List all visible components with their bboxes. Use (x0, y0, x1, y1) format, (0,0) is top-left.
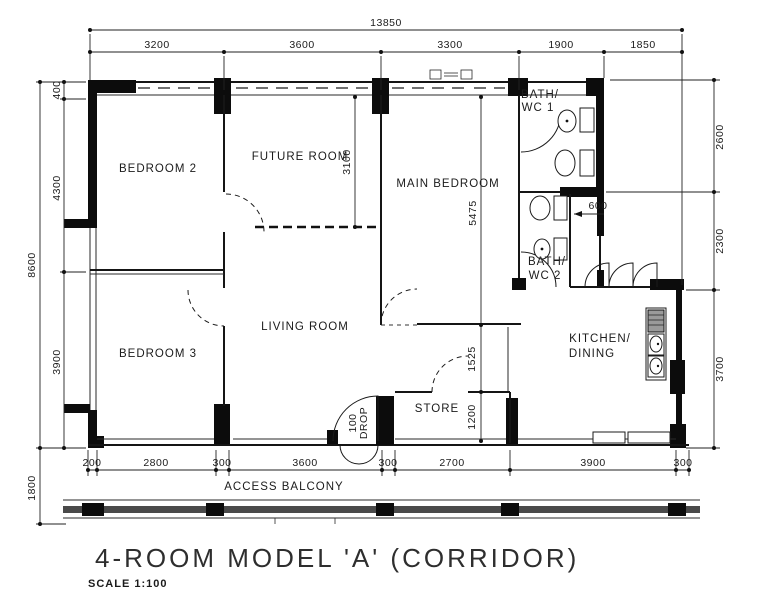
label-living-room: LIVING ROOM (261, 321, 349, 333)
dim-right-3: 3700 (714, 356, 726, 381)
dim-bottom-7: 3900 (580, 457, 605, 469)
store-door-swing (432, 356, 468, 392)
dim-top-1: 3200 (144, 39, 169, 51)
dim-bottom-8: 300 (673, 457, 692, 469)
room-labels: BEDROOM 2 FUTURE ROOM MAIN BEDROOM BEDRO… (119, 89, 631, 493)
dim-bottom-3: 300 (212, 457, 231, 469)
kitchen-sink-unit (646, 308, 666, 380)
entrance-gate-swing (340, 445, 359, 464)
dim-right-2: 2300 (714, 228, 726, 253)
label-bedroom3: BEDROOM 3 (119, 348, 197, 360)
dim-top-2: 3600 (289, 39, 314, 51)
dim-bottom-2: 2800 (143, 457, 168, 469)
label-bath2-1: BATH/ (528, 256, 566, 268)
wall-fin-upper (64, 219, 90, 228)
bath1-vanity (580, 108, 594, 132)
dim-bottom-4: 3600 (292, 457, 317, 469)
vent-symbol (430, 70, 472, 79)
label-store: STORE (415, 403, 459, 415)
dim-bottom-5: 300 (378, 457, 397, 469)
label-kitchen-2: DINING (569, 348, 615, 360)
exterior-walls (64, 78, 689, 448)
dim-hall-width: 1525 (466, 346, 478, 371)
dim-left-overall: 8600 (26, 252, 38, 277)
dim-store-depth: 1200 (466, 404, 478, 429)
label-kitchen-1: KITCHEN/ (569, 333, 631, 345)
entrance-gate-swing (359, 445, 378, 464)
bath2-wc-tank (554, 196, 567, 220)
kitchen-folding-door (609, 263, 633, 287)
label-bath1-1: BATH/ (521, 89, 559, 101)
dim-left-1: 400 (51, 80, 63, 99)
corridor-strip (63, 500, 700, 524)
title-block: 4-ROOM MODEL 'A' (CORRIDOR) SCALE 1:100 (88, 543, 579, 590)
kitchen-window (593, 432, 625, 443)
dim-bottom-6: 2700 (439, 457, 464, 469)
dim-duct: 600 (588, 200, 607, 212)
drawing-title: 4-ROOM MODEL 'A' (CORRIDOR) (95, 543, 579, 573)
label-main-bedroom: MAIN BEDROOM (396, 178, 499, 190)
dim-top-4: 1900 (548, 39, 573, 51)
bedroom3-door-swing (188, 290, 224, 326)
bath1-door-swing (521, 112, 561, 152)
label-access-balcony: ACCESS BALCONY (224, 481, 343, 493)
dim-main-bedroom-depth: 5475 (467, 200, 479, 225)
main-bedroom-door-swing (381, 289, 417, 325)
dim-top-5: 1850 (630, 39, 655, 51)
bath1-wc (555, 150, 575, 176)
floor-plan-drawing: BEDROOM 2 FUTURE ROOM MAIN BEDROOM BEDRO… (0, 0, 779, 600)
dim-right-1: 2600 (714, 124, 726, 149)
dim-bottom-1: 200 (82, 457, 101, 469)
dim-left-lower: 1800 (26, 475, 38, 500)
dim-top-3: 3300 (437, 39, 462, 51)
bath1-wc-tank (580, 150, 594, 176)
bath2-wc (530, 196, 550, 220)
dim-left-2: 4300 (51, 175, 63, 200)
label-bath1-2: WC 1 (522, 102, 555, 114)
dim-overall-width: 13850 (370, 17, 402, 29)
kitchen-window (628, 432, 670, 443)
label-bedroom2: BEDROOM 2 (119, 163, 197, 175)
dim-future-depth: 3100 (341, 149, 353, 174)
label-future-room: FUTURE ROOM (252, 151, 349, 163)
dim-drop-label: DROP (358, 407, 370, 439)
dim-left-3: 3900 (51, 349, 63, 374)
interior-walls (90, 95, 604, 443)
wall-fin-lower (64, 404, 90, 413)
floor-plan-sheet: BEDROOM 2 FUTURE ROOM MAIN BEDROOM BEDRO… (0, 0, 779, 600)
label-bath2-2: WC 2 (529, 270, 562, 282)
drawing-scale: SCALE 1:100 (88, 578, 167, 590)
